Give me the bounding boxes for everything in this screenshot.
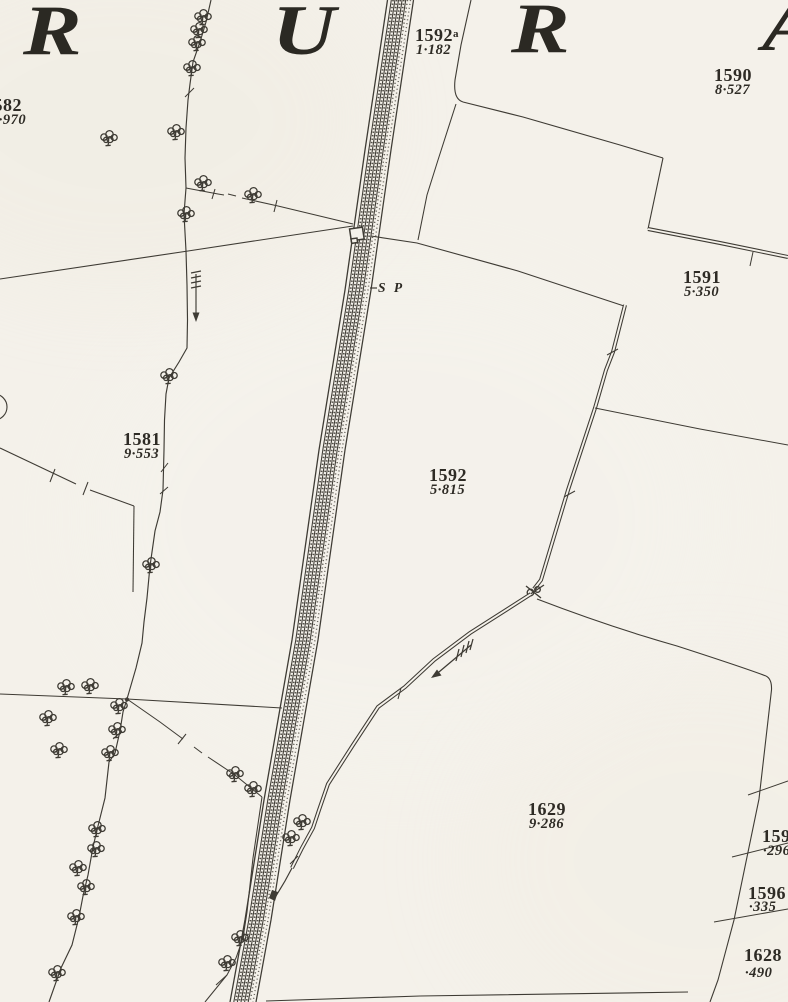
svg-text:A: A [756, 0, 788, 66]
svg-text:R: R [22, 0, 82, 70]
svg-text:9·286: 9·286 [529, 816, 564, 832]
svg-text:U: U [272, 0, 340, 70]
svg-text:·335: ·335 [749, 899, 776, 915]
svg-text:9·553: 9·553 [124, 446, 159, 462]
svg-text:1·182: 1·182 [416, 42, 451, 58]
svg-text:8·527: 8·527 [715, 82, 750, 98]
svg-text:·490: ·490 [745, 965, 772, 981]
svg-text:1628: 1628 [744, 945, 782, 965]
svg-text:3·970: 3·970 [0, 112, 26, 128]
svg-text:5·350: 5·350 [684, 284, 719, 300]
svg-text:5·815: 5·815 [430, 482, 465, 498]
svg-text:R: R [510, 0, 570, 68]
svg-text:·296: ·296 [763, 843, 788, 859]
svg-text:S P: S P [378, 280, 405, 295]
